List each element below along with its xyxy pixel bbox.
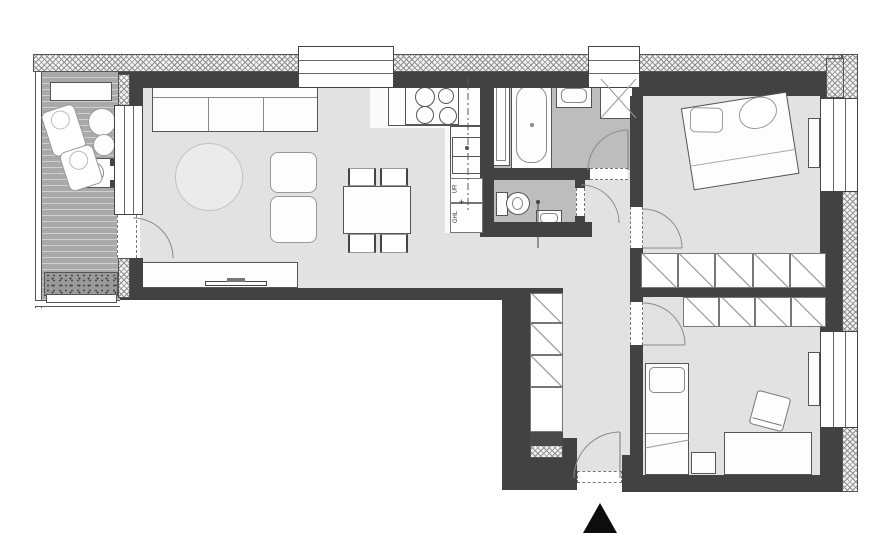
bedroom1-window (820, 98, 858, 192)
north-arrow-icon (583, 503, 617, 533)
window-frame-line (845, 332, 846, 427)
wall-wc-door-cap-bottom (575, 216, 585, 237)
bathtub (511, 79, 552, 169)
burner (438, 88, 454, 104)
wardrobe-cell (683, 297, 719, 327)
dining-chair (348, 234, 376, 253)
balcony-window (114, 105, 143, 215)
hatch-balcony-pier-top (118, 74, 130, 107)
hall-closet-cell-plain (530, 387, 563, 432)
dining-chair (348, 168, 376, 186)
wall-top-right (632, 70, 842, 96)
bedroom2-door-opening (630, 302, 643, 345)
wardrobe-cell (755, 297, 791, 327)
living-room-window (298, 46, 394, 88)
bed-pillow (649, 367, 685, 393)
kitchen-plus-mark: + (459, 197, 464, 207)
balcony-railing-left (35, 54, 42, 308)
hall-closet-cell (530, 323, 563, 355)
wardrobe-cell (753, 253, 790, 288)
dining-chair (380, 168, 408, 186)
bedroom2-window (820, 331, 858, 428)
wardrobe-cell (678, 253, 715, 288)
balcony-planter-edge (46, 294, 117, 303)
entry-door-opening (577, 471, 622, 483)
floor-plan-canvas: UR GHL + (0, 0, 877, 537)
balcony-armchair (78, 158, 118, 188)
window-frame-line (299, 60, 393, 61)
wardrobe-cell (641, 253, 678, 288)
balcony-side-table-2 (93, 134, 115, 156)
tv-stand (227, 278, 245, 282)
burner (416, 106, 434, 124)
exterior-wall-hatch-corner (826, 58, 844, 98)
window-frame-line (589, 73, 639, 74)
armchair-cushion (82, 162, 104, 184)
desk (724, 432, 812, 475)
nightstand (691, 452, 716, 474)
hatch-balcony-pier-bottom (118, 258, 130, 298)
balcony-planter (44, 272, 118, 296)
sofa-seam (208, 97, 209, 131)
sofa-seam (263, 97, 264, 131)
toilet-bowl (506, 192, 530, 215)
window-frame-line (833, 332, 834, 427)
kitchen-unit-label: GHL (453, 211, 459, 223)
hall-closet-base (530, 432, 563, 446)
wardrobe-cell (715, 253, 753, 288)
balcony-door-opening (117, 215, 137, 258)
window-frame-line (299, 73, 393, 74)
sink-divider (453, 156, 481, 157)
wall-bedroom2-south (643, 475, 842, 492)
wall-entry-cap-east (622, 455, 643, 492)
sofa (152, 83, 318, 132)
dining-chair (380, 234, 408, 253)
sink-drain (465, 146, 469, 150)
sofa-seat-line (153, 97, 317, 98)
lounge-chair-cushion (270, 152, 317, 193)
bathroom-door-opening (590, 168, 628, 180)
wall-wc-door-cap-top (575, 178, 585, 188)
kitchen-sink (452, 137, 482, 174)
window-frame-line (124, 106, 125, 214)
bathroom-tall-cabinet (492, 78, 510, 166)
bed-blanket-line (646, 433, 688, 434)
radiator-bedroom1 (808, 118, 820, 168)
wc-door-opening (576, 188, 585, 216)
burner (439, 107, 457, 125)
bathroom-window (588, 46, 640, 88)
window-frame-line (833, 99, 834, 191)
hall-closet-cell (530, 293, 563, 323)
radiator-bedroom2 (808, 352, 820, 406)
wardrobe-cell (791, 297, 826, 327)
balcony-side-table (88, 108, 116, 136)
cabinet-inner (496, 83, 506, 161)
balcony-bench (50, 82, 112, 101)
window-frame-line (845, 99, 846, 191)
window-frame-line (589, 60, 639, 61)
bedroom1-door-opening (630, 207, 643, 248)
kitchen-unit-label: UR (452, 185, 458, 194)
single-bed (645, 363, 689, 475)
exterior-wall-hatch-top (33, 54, 842, 72)
washbasin-bowl (561, 88, 587, 103)
lounge-chair-cushion-2 (270, 196, 317, 243)
wall-entry-west (502, 288, 530, 458)
window-frame-line (133, 106, 134, 214)
burner (415, 87, 435, 107)
round-rug (175, 143, 243, 211)
wall-bedroom-divider (637, 288, 842, 297)
wardrobe-cell (790, 253, 826, 288)
wall-living-south (133, 288, 530, 300)
toilet-bowl-inner (512, 197, 523, 210)
dining-table (343, 186, 411, 234)
wardrobe-cell (719, 297, 755, 327)
bathtub-drain (530, 123, 534, 127)
hall-closet-cell (530, 355, 563, 387)
